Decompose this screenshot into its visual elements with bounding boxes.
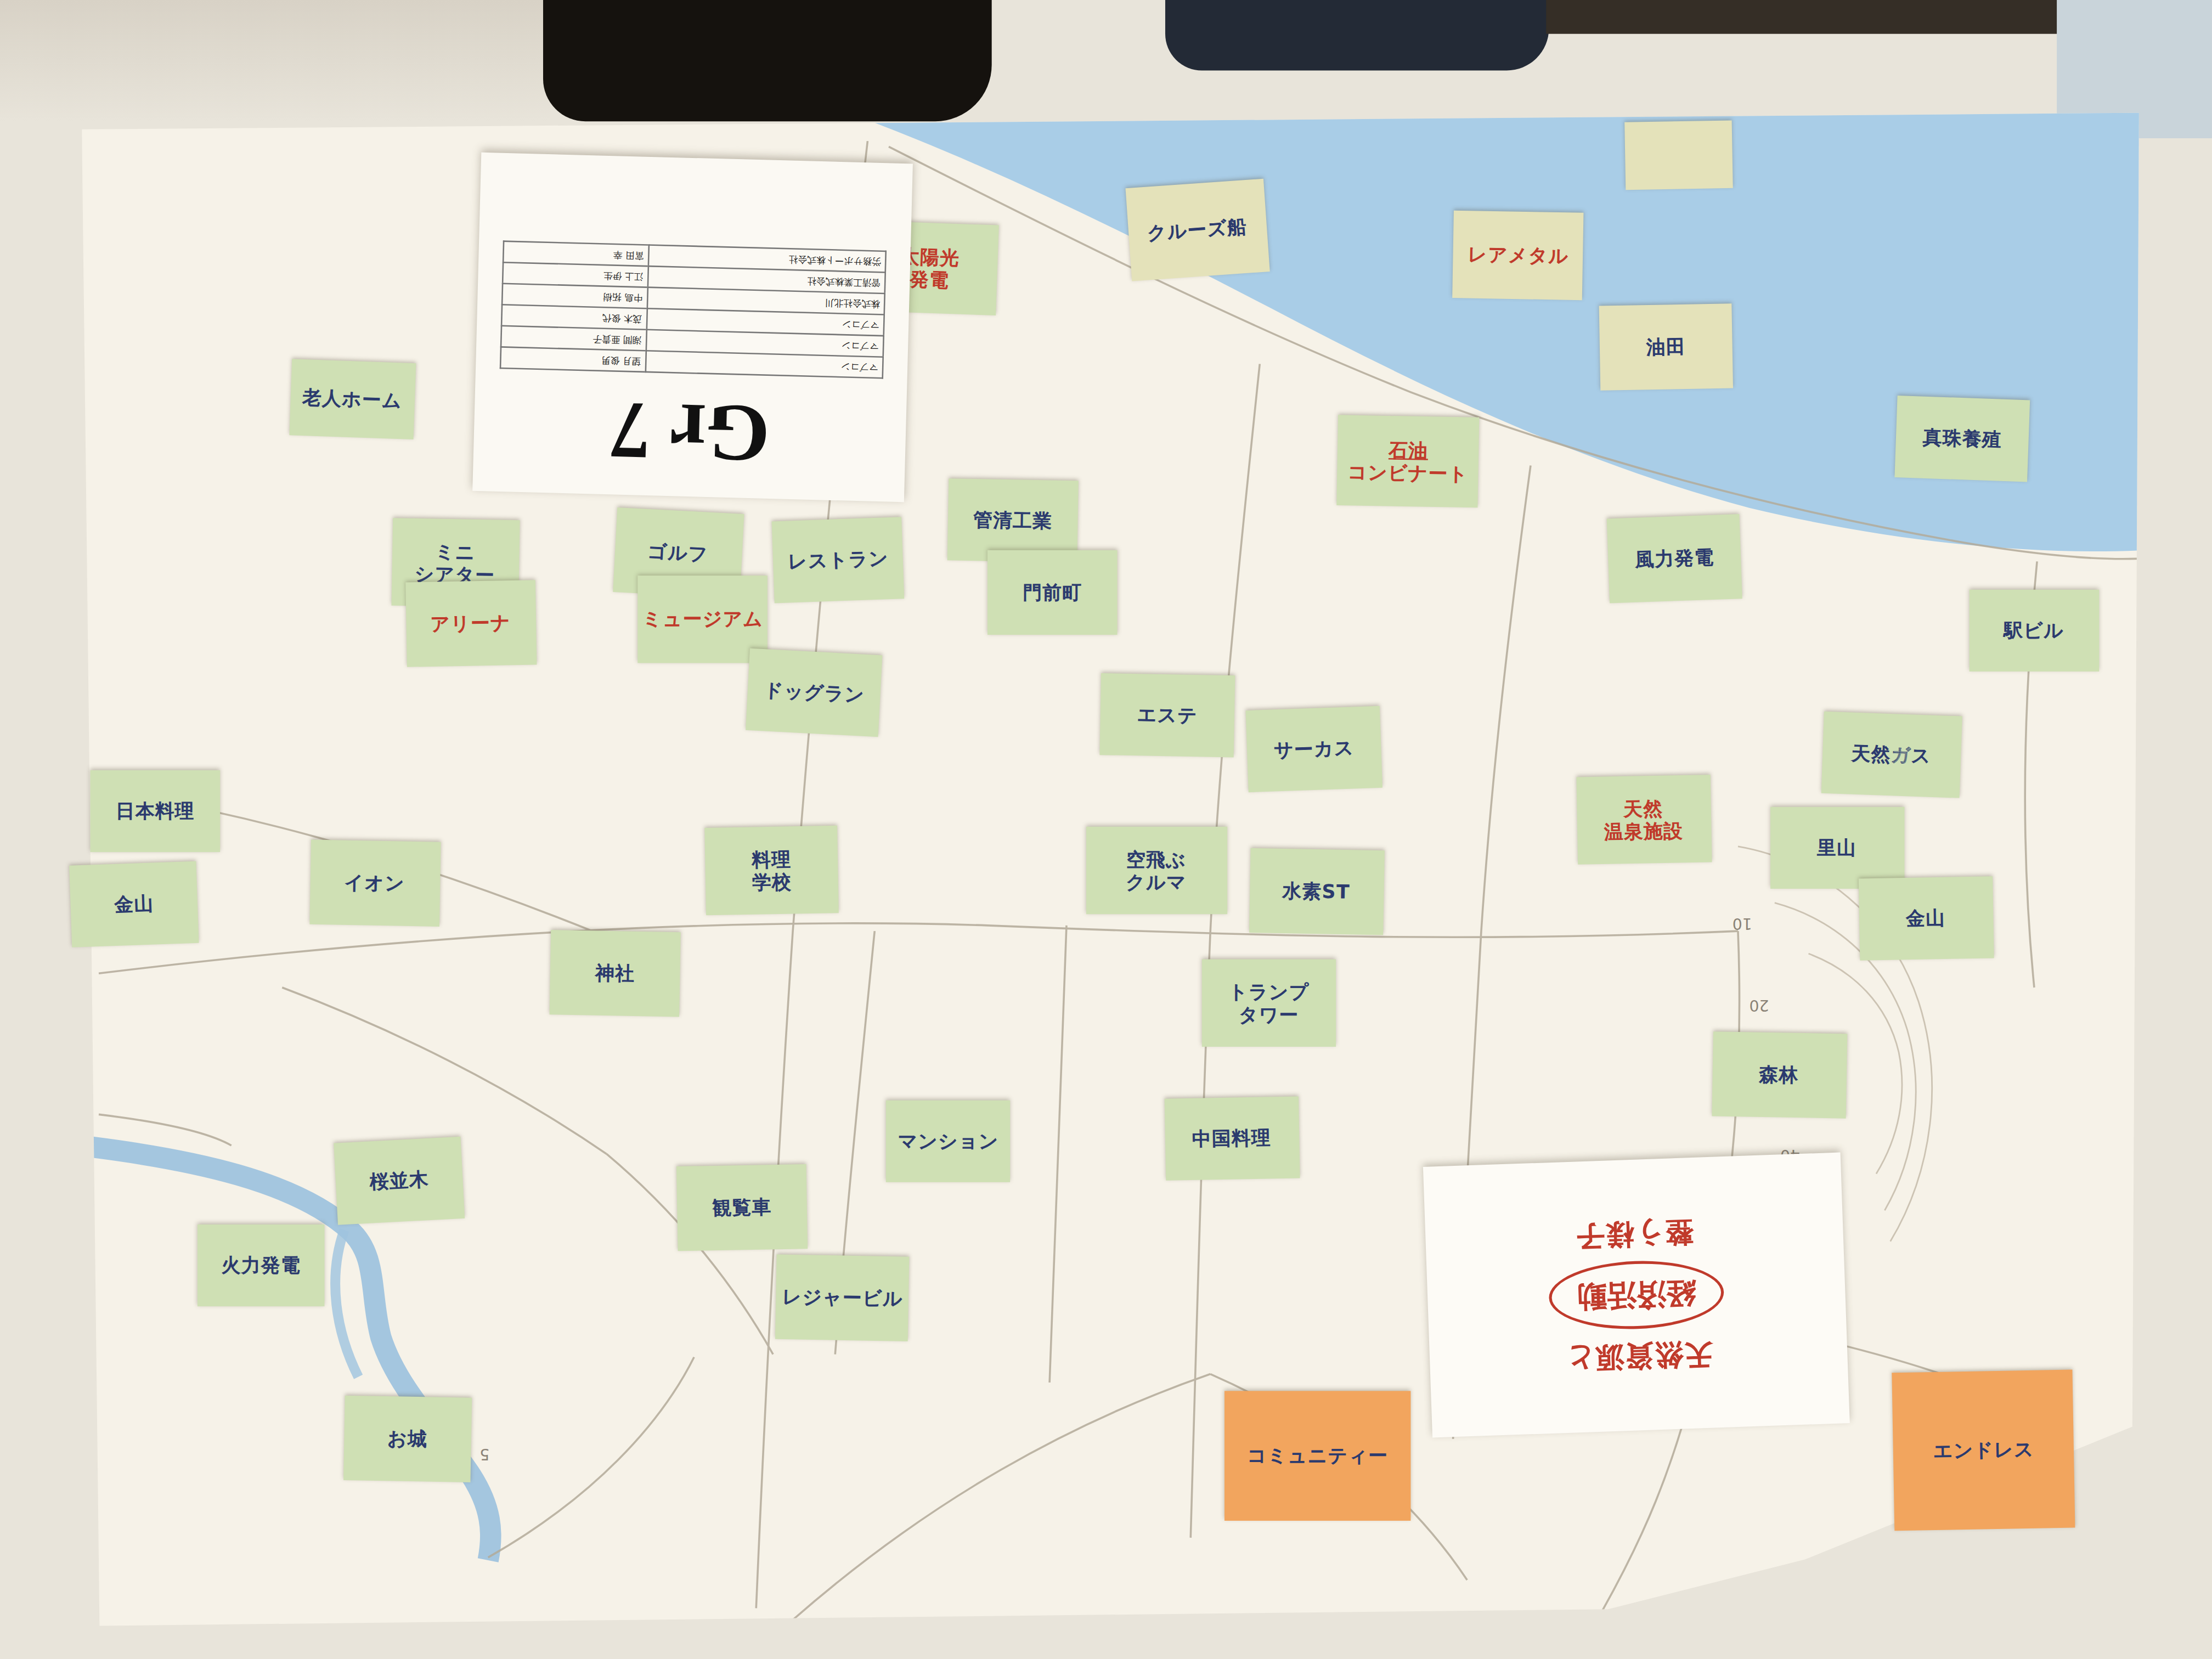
contour-label-5: 5 [479, 1444, 489, 1463]
sticky-note-text: レアメタル [1467, 244, 1568, 267]
sticky-note: レジャービル [775, 1254, 909, 1341]
group-title: Gr 7 [609, 383, 771, 482]
sticky-note-text: 料理 [752, 848, 792, 871]
sticky-note-text: タワー [1228, 1003, 1309, 1025]
sticky-note-text: ミュージアム [642, 608, 763, 630]
sticky-note: エステ [1099, 673, 1235, 757]
sticky-note-text: クルマ [1126, 871, 1187, 893]
sticky-note-text: エンドレス [1933, 1438, 2034, 1462]
chair-silhouette [1165, 0, 1549, 71]
sticky-note: 観覧車 [676, 1164, 808, 1251]
member-table: マブコン望月 俊男マブコン湖間 亜貴子マブコン茂木 俊代株式会社北川中島 拓樹管… [499, 240, 887, 379]
sticky-note: コミュニティー [1224, 1391, 1410, 1521]
sticky-note-text: ゴルフ [648, 540, 709, 566]
sticky-note: 真珠養殖 [1894, 396, 2030, 482]
sticky-note: 金山 [1859, 876, 1994, 960]
sticky-note-text: 金山 [114, 893, 154, 916]
sticky-note: エンドレス [1892, 1370, 2075, 1531]
sticky-note-text: エステ [1137, 704, 1198, 727]
sticky-note: 門前町 [988, 550, 1118, 635]
sticky-note-text: 火力発電 [222, 1255, 301, 1277]
sticky-note-text: サーカス [1273, 737, 1355, 761]
sticky-note-text: トランプ [1228, 981, 1309, 1003]
sticky-note: ドッグラン [746, 648, 882, 737]
sticky-note: 老人ホーム [289, 359, 416, 439]
sticky-note: 里山 [1770, 807, 1904, 889]
sticky-note: サーカス [1246, 706, 1383, 793]
sticky-note-text: 天然ガス [1852, 742, 1932, 767]
sticky-note-text: お城 [387, 1427, 428, 1450]
member-name: 茂木 俊代 [501, 304, 647, 330]
sticky-note-text: マンション [898, 1130, 998, 1152]
sticky-note-text: アリーナ [431, 612, 511, 635]
sticky-note-text: ミニ [415, 540, 496, 563]
sticky-note: ミュージアム [637, 575, 768, 663]
sticky-note: 風力発電 [1607, 514, 1742, 603]
sticky-note: 水素ST [1249, 848, 1385, 935]
vision-line-2: 整う様子 [1574, 1212, 1694, 1255]
contour-label-10: 10 [1733, 914, 1752, 932]
sticky-note: クルーズ船 [1126, 179, 1270, 281]
member-name: 湖間 亜貴子 [500, 326, 646, 351]
sticky-note-text: 管清工業 [973, 509, 1053, 532]
sticky-note: アリーナ [405, 580, 537, 667]
tablecloth-top-shadow [0, 0, 550, 121]
sticky-note-text: 金山 [1906, 907, 1946, 929]
sticky-note: 油田 [1599, 303, 1733, 390]
sticky-note: 天然温泉施設 [1576, 775, 1712, 865]
sticky-note: 日本料理 [91, 770, 221, 852]
sticky-note-text: 観覧車 [712, 1196, 772, 1219]
member-name: 望月 俊男 [500, 347, 646, 372]
sticky-note-text: クルーズ船 [1147, 216, 1249, 245]
sticky-note: 金山 [69, 861, 199, 947]
sticky-note: 中国料理 [1165, 1096, 1300, 1180]
sticky-note-text: 神社 [595, 962, 635, 985]
member-name: 江上 伊生 [502, 262, 648, 287]
sticky-note-text: 中国料理 [1193, 1127, 1272, 1150]
sticky-note: 天然ガス [1821, 712, 1962, 798]
sticky-note: 桜並木 [334, 1137, 465, 1225]
sticky-note-text: レジャービル [782, 1286, 903, 1310]
backpack-silhouette [543, 0, 992, 121]
contour-label-20: 20 [1750, 996, 1769, 1014]
sticky-note-text: ドッグラン [763, 679, 865, 706]
vision-circled-phrase: 経済活動 [1548, 1258, 1725, 1331]
sticky-note: 神社 [550, 930, 681, 1017]
sticky-note-text: 油田 [1646, 336, 1686, 358]
member-name: 中島 拓樹 [501, 284, 647, 309]
vision-line-1: 天然資源と [1564, 1335, 1713, 1378]
sticky-note-text: コミュニティー [1247, 1445, 1388, 1467]
sticky-note-text: コンビナート [1347, 460, 1469, 484]
sticky-note: 森林 [1712, 1031, 1847, 1119]
member-name: 富田 幸 [503, 241, 648, 267]
sticky-note [1624, 120, 1733, 190]
sticky-note-text: 温泉施設 [1605, 819, 1684, 842]
sticky-note-text: 風力発電 [1635, 546, 1714, 571]
sticky-note: 火力発電 [198, 1224, 324, 1306]
sticky-note-text: 水素ST [1283, 880, 1351, 903]
sticky-note-text: 空飛ぶ [1126, 849, 1187, 871]
sticky-note-text: 門前町 [1023, 582, 1082, 603]
sticky-note: 空飛ぶクルマ [1086, 827, 1227, 914]
sticky-note: レアメタル [1452, 211, 1583, 301]
sticky-note: 駅ビル [1970, 590, 2100, 672]
sticky-note: お城 [343, 1396, 472, 1482]
sticky-note: レストラン [772, 517, 905, 603]
sticky-note-text: 日本料理 [116, 800, 195, 822]
sticky-note-text: 駅ビル [2004, 619, 2064, 641]
sticky-note: 石油コンビナート [1336, 415, 1479, 507]
sticky-note-text: 真珠養殖 [1922, 426, 2002, 451]
sticky-note-text: 天然 [1604, 797, 1684, 820]
sticky-note: 料理学校 [704, 826, 838, 916]
sticky-note-text: 石油 [1347, 438, 1469, 462]
sticky-note-text: イオン [345, 872, 405, 895]
sticky-note: イオン [309, 840, 441, 927]
sticky-note-text: 里山 [1818, 837, 1857, 859]
sticky-note-text: 老人ホーム [302, 387, 403, 412]
vision-card: 天然資源と 経済活動 整う様子 [1423, 1153, 1850, 1438]
sticky-note-text: 桜並木 [369, 1169, 430, 1193]
sticky-note: マンション [886, 1101, 1010, 1182]
sticky-note: トランプタワー [1202, 960, 1336, 1047]
group-sign-paper: Gr 7 マブコン望月 俊男マブコン湖間 亜貴子マブコン茂木 俊代株式会社北川中… [472, 153, 913, 503]
sticky-note-text: 学校 [752, 870, 792, 893]
table-edge-shadow [1546, 0, 2068, 34]
photo-of-workshop-map: 10 20 30 40 5 老人ホーム特区ミニシアターアリーナゴルフミュージアム… [0, 0, 2212, 1659]
sticky-note-text: 森林 [1759, 1064, 1799, 1086]
sticky-note-text: レストラン [787, 548, 889, 573]
